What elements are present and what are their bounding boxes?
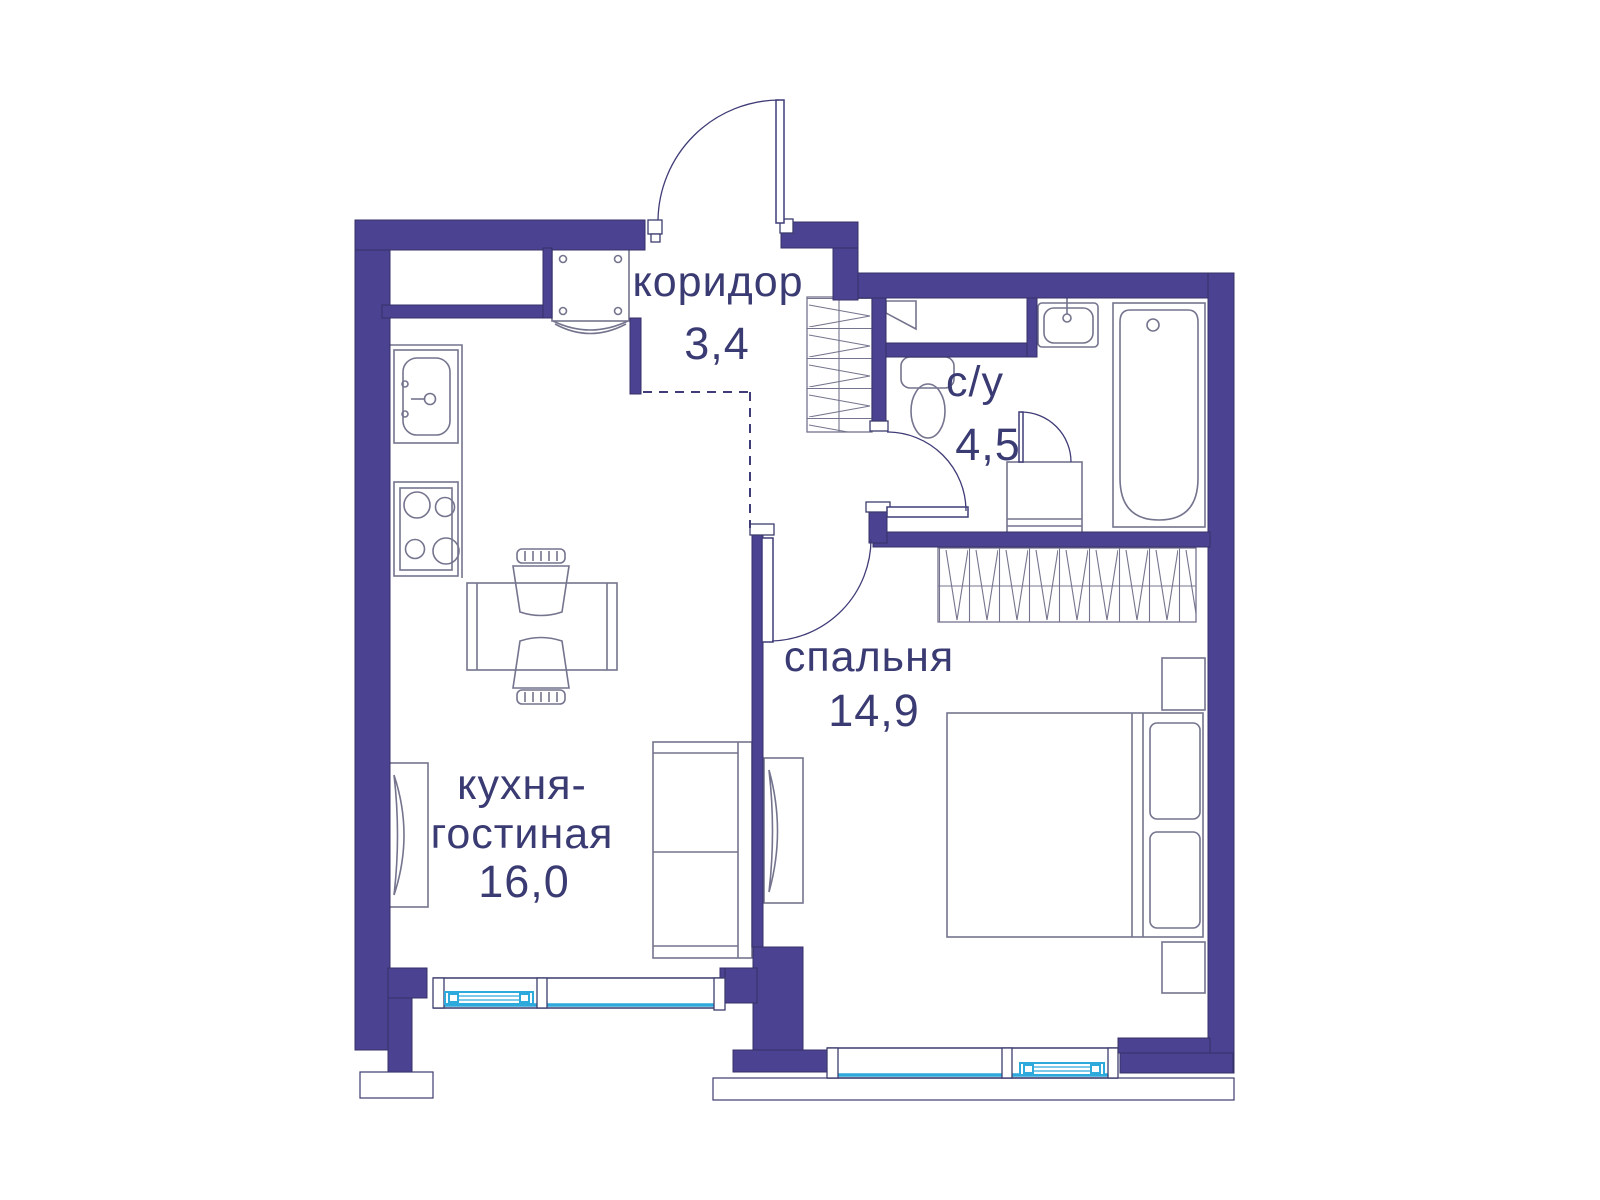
wall-bathroom-left — [872, 298, 886, 425]
pier-kitchen-window-left — [388, 968, 427, 998]
sofa — [653, 742, 752, 958]
window-bedroom — [827, 1048, 1118, 1078]
wall-right — [1208, 273, 1234, 1073]
tv-bedroom-icon — [764, 758, 803, 903]
pillow — [1150, 723, 1200, 819]
room-label-corridor: коридор — [632, 258, 803, 306]
floor-plan-page: коридор 3,4 с/у 4,5 спальня 14,9 кухня- … — [0, 0, 1600, 1200]
wardrobe-bedroom — [938, 548, 1196, 622]
wall-bedroom-north — [873, 532, 1210, 547]
room-label-bedroom: спальня — [784, 633, 954, 681]
wall-bedroom-south — [1120, 1053, 1233, 1073]
room-label-bathroom: с/у — [946, 358, 1004, 406]
pier-left-lower — [388, 998, 412, 1072]
pier-bottom-center — [753, 947, 803, 1053]
nightstand-top — [1162, 658, 1205, 710]
entrance-door-swing-arc — [658, 100, 779, 220]
wall-corridor-stub — [630, 318, 641, 394]
pillow — [1150, 832, 1200, 928]
entrance-door-leaf — [776, 100, 784, 223]
wall-bathroom-shelf — [886, 343, 1037, 357]
bathroom-zone — [886, 296, 1205, 535]
wardrobe-corridor — [807, 297, 872, 432]
pier-bottom-center-ledge — [733, 1050, 827, 1072]
radiator-kitchen — [445, 992, 533, 1004]
pier-kitchen-window-right — [725, 968, 757, 1003]
zone-boundary-dashed — [643, 392, 750, 528]
bathtub-icon — [1113, 303, 1205, 527]
dining-table — [467, 583, 617, 670]
bedroom-zone — [764, 548, 1205, 993]
wall-entry-step — [833, 248, 858, 300]
room-area-bedroom: 14,9 — [828, 685, 920, 736]
wall-left — [355, 220, 390, 1050]
bathroom-door-leaf — [887, 507, 968, 517]
washbasin-icon — [1038, 296, 1098, 347]
stove-icon — [394, 482, 459, 576]
slab-edge-bottom — [713, 1078, 1234, 1100]
wall-bathroom-divider — [1027, 298, 1037, 357]
wall-top-kitchen — [355, 220, 645, 250]
kitchen-sink — [394, 350, 458, 443]
bedroom-door-leaf — [762, 538, 773, 642]
room-area-kitchen: 16,0 — [478, 856, 570, 907]
radiator-bedroom — [1020, 1063, 1104, 1075]
room-label-kitchen-line1: кухня- — [457, 761, 587, 809]
pier-bedroom-ledge — [1118, 1038, 1210, 1053]
vent-shaft-mark — [886, 301, 916, 329]
room-label-kitchen-line2: гостиная — [431, 810, 614, 858]
cabinet-door-swing-arc — [1021, 412, 1071, 462]
bedroom-door-swing-arc — [772, 539, 871, 641]
hall-cabinet — [552, 248, 629, 334]
slab-edge-left — [360, 1072, 433, 1098]
wall-niche-divider — [543, 248, 552, 318]
bed — [947, 713, 1203, 937]
wall-kitchen-niche — [382, 305, 543, 318]
wall-top-bathroom — [858, 273, 1210, 298]
bathroom-door-swing-arc — [887, 432, 966, 511]
wall-bathdoor-jamb — [869, 510, 887, 543]
floor-plan-drawing: коридор 3,4 с/у 4,5 спальня 14,9 кухня- … — [0, 0, 1600, 1200]
window-kitchen — [433, 978, 725, 1010]
room-area-corridor: 3,4 — [684, 318, 750, 369]
room-area-bathroom: 4,5 — [955, 419, 1021, 470]
nightstand-bottom — [1162, 942, 1205, 993]
tv-living-icon — [388, 763, 428, 907]
entrance-door — [648, 100, 793, 242]
